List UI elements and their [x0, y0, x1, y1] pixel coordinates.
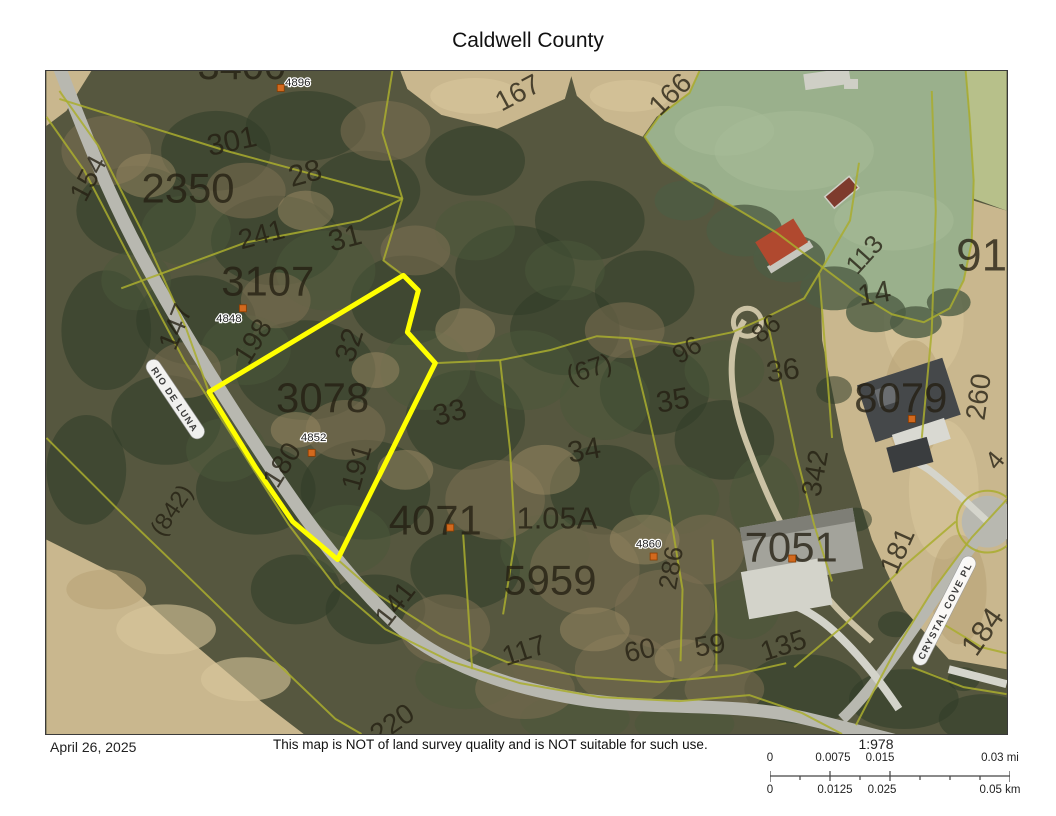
parcel-number-label: 8079: [854, 374, 947, 421]
scale-bar: 1:978 0 0.0075 0.015 0.03 mi 0 0.0125 0.…: [755, 736, 1055, 814]
dock-platform: [844, 79, 858, 89]
parcel-number-label: 3078: [276, 374, 369, 421]
address-point-marker: [650, 553, 657, 560]
address-point-label: 4852: [301, 432, 326, 444]
address-point-marker: [908, 415, 915, 422]
scale-mi-2: 0.015: [866, 752, 895, 764]
scale-km-3: 0.05 km: [980, 784, 1021, 796]
parcel-number-label: 2350: [141, 165, 234, 212]
parcel-number-label: 3107: [221, 257, 314, 304]
scale-mi-0: 0: [767, 752, 773, 764]
parcel-number-label: 260: [960, 371, 997, 421]
map-canvas[interactable]: 3400235031073078407159591.05A80797051913…: [46, 71, 1007, 734]
parcel-number-label: 3400: [198, 71, 287, 88]
scale-km-0: 0: [767, 784, 773, 796]
scale-ruler: [770, 769, 1010, 783]
parcel-number-label: 35: [654, 381, 692, 419]
scale-mi-3: 0.03 mi: [981, 752, 1019, 764]
parcel-number-label: 60: [621, 632, 658, 669]
address-point-label: 4860: [636, 539, 661, 551]
parcel-number-label: 7051: [745, 524, 838, 571]
address-point-marker: [447, 524, 454, 531]
parcel-number-label: 34: [565, 431, 603, 469]
map-date: April 26, 2025: [50, 739, 136, 755]
address-point-marker: [308, 449, 315, 456]
map-viewport[interactable]: 3400235031073078407159591.05A80797051913…: [45, 70, 1008, 735]
scale-km-1: 0.0125: [817, 784, 852, 796]
scale-ratio: 1:978: [755, 736, 997, 752]
scale-km-2: 0.025: [868, 784, 897, 796]
scale-mi-1: 0.0075: [815, 752, 850, 764]
address-point-marker: [789, 555, 796, 562]
parcel-number-label: 36: [764, 352, 802, 389]
page-title: Caldwell County: [0, 29, 1056, 53]
parcel-number-label: 4071: [389, 497, 482, 544]
page: Caldwell County: [0, 0, 1056, 816]
address-point-marker: [239, 305, 246, 312]
parcel-number-label: 1.05A: [517, 501, 598, 536]
address-point-label: 4848: [216, 313, 241, 325]
parcel-number-label: 59: [692, 627, 728, 663]
parcel-number-label: 91: [956, 228, 1007, 280]
address-point-marker: [277, 84, 284, 91]
parcel-number-label: 5959: [503, 556, 596, 603]
address-point-label: 4896: [285, 77, 310, 89]
parcel-number-label: 14: [855, 275, 893, 313]
map-disclaimer: This map is NOT of land survey quality a…: [273, 737, 713, 752]
